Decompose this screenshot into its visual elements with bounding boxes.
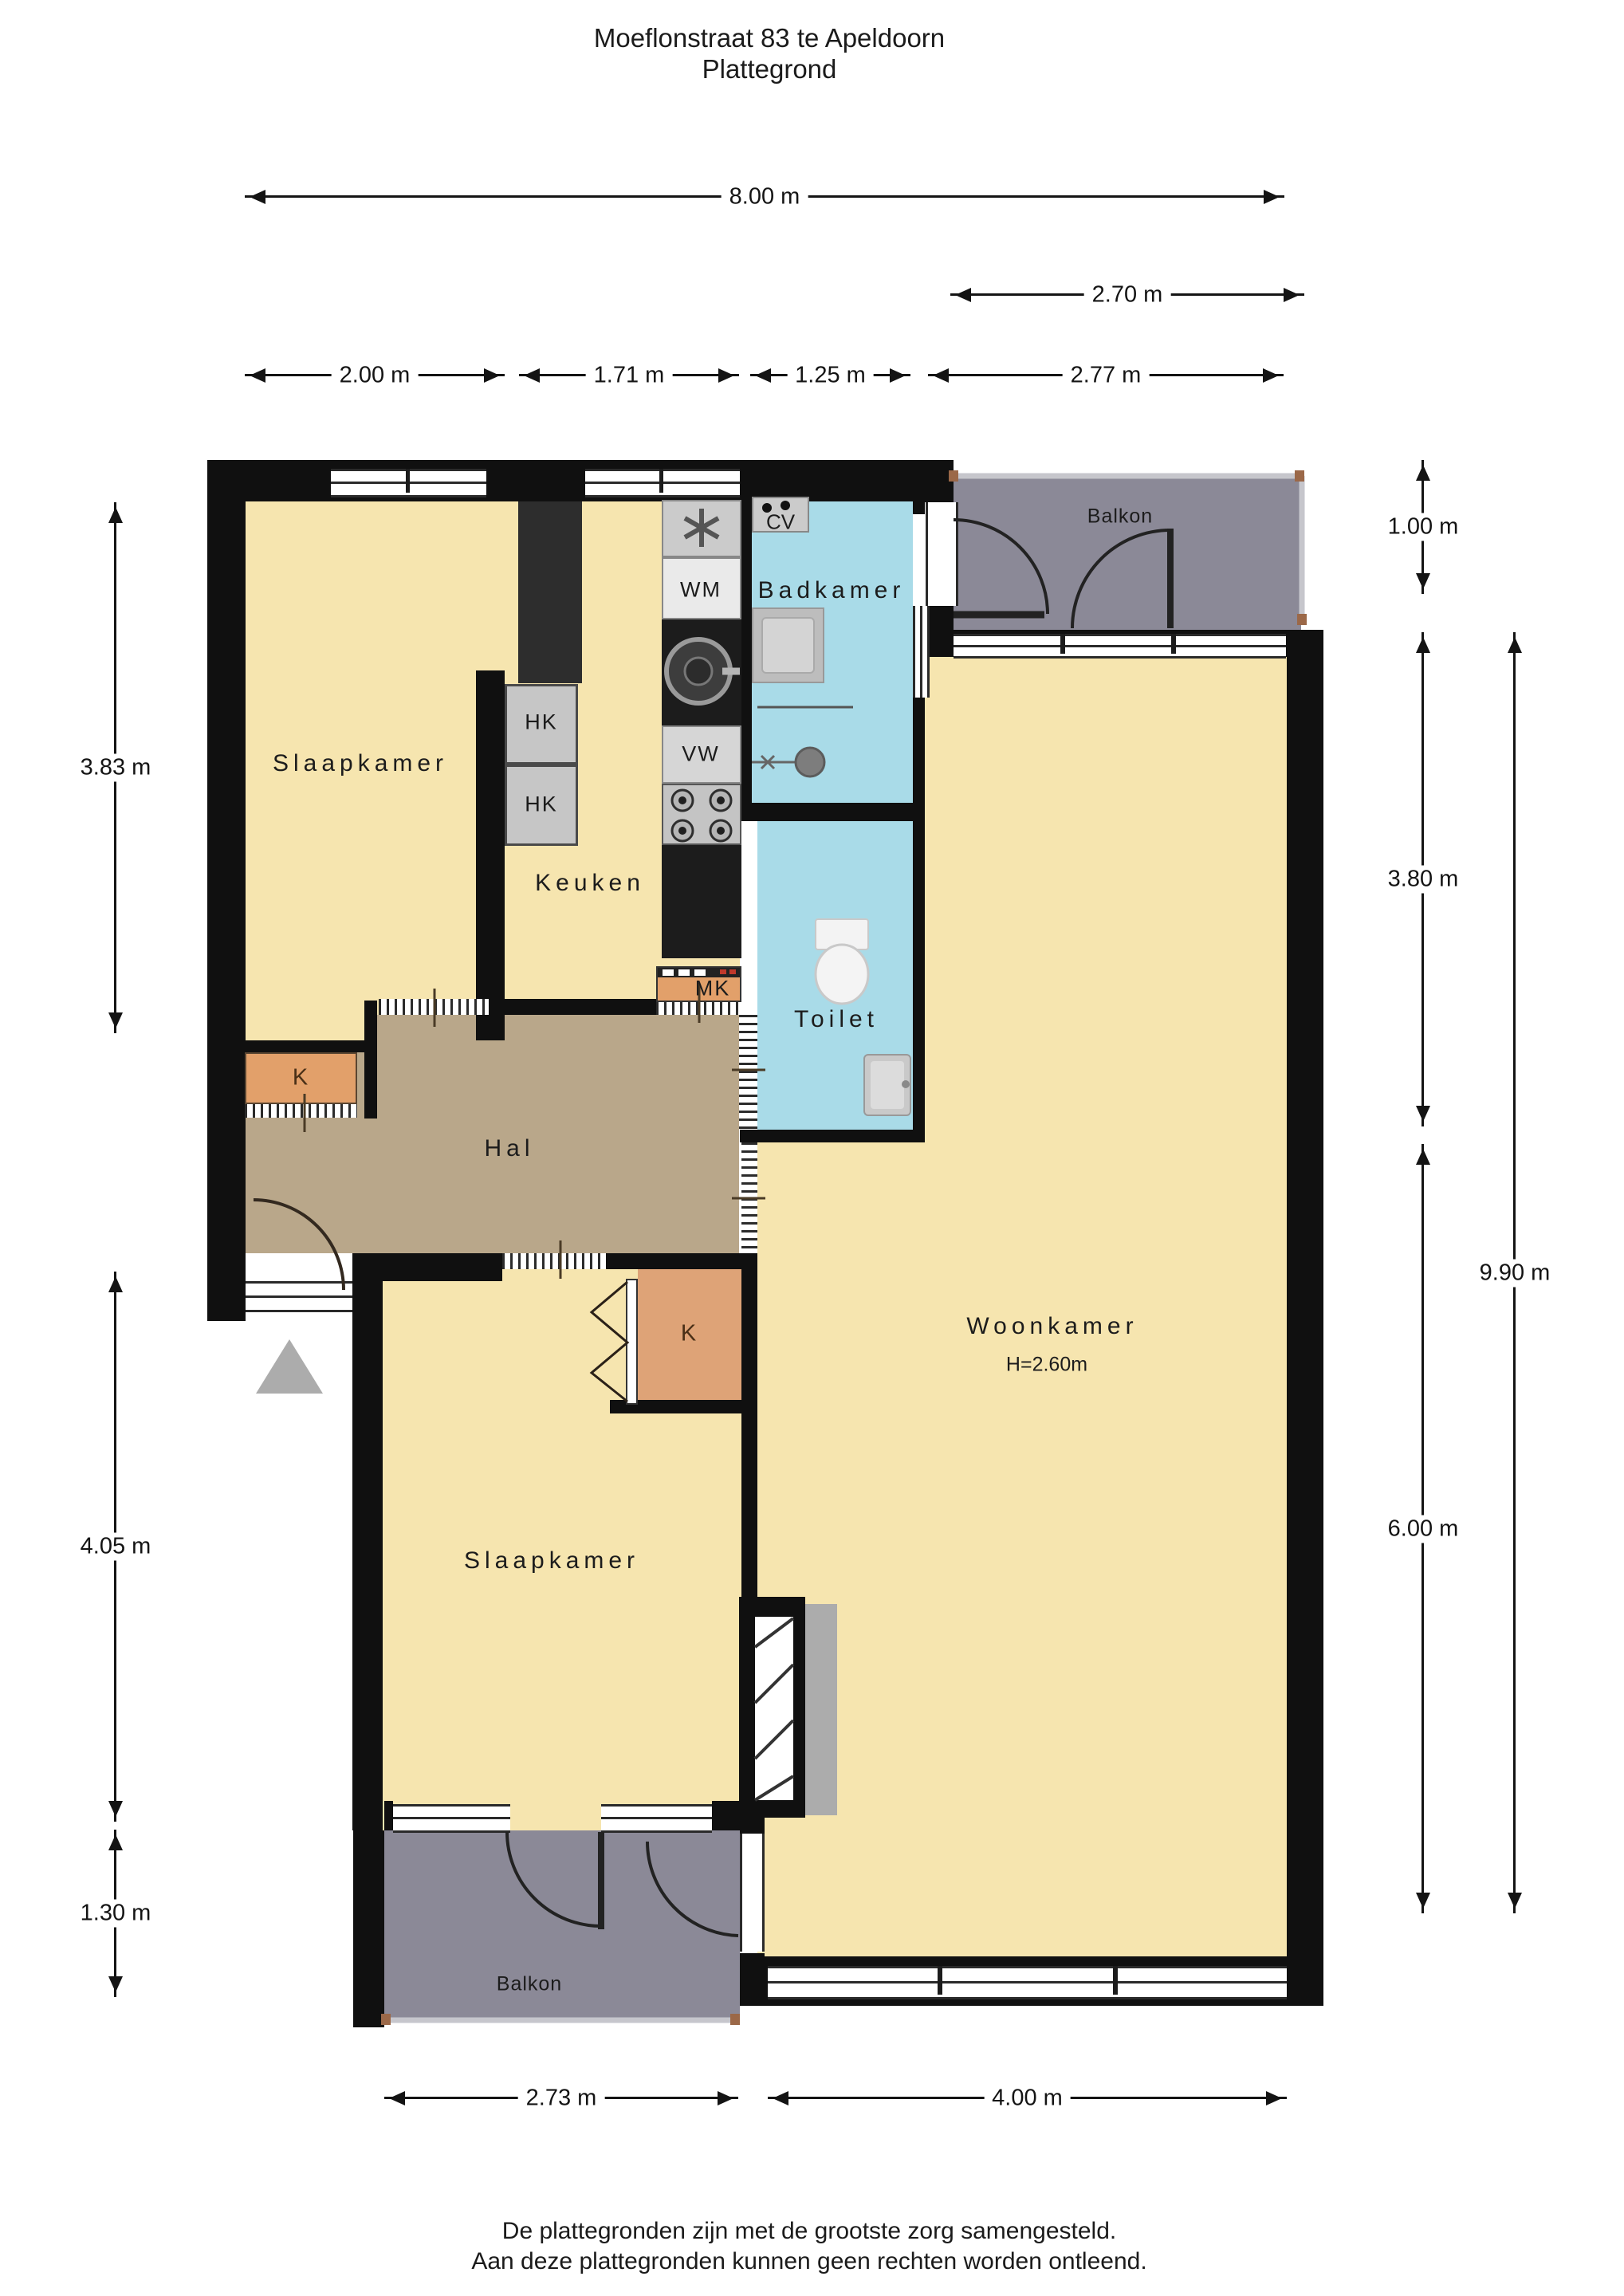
woonkamer-balkon-top-door-arc [1072, 530, 1170, 628]
label-kast-slaapkamer: K [681, 1321, 697, 1347]
label-balkon-bottom: Balkon [497, 1973, 562, 1996]
label-wasmachine: WM [680, 578, 722, 603]
dim-label: 1.25 m [787, 362, 874, 390]
dim-badkamer-width: 1.25 m [750, 374, 910, 376]
toilet-bowl [816, 945, 868, 1004]
disclaimer-line-2: Aan deze plattegronden kunnen geen recht… [471, 2247, 1146, 2277]
dim-label: 8.00 m [722, 183, 808, 211]
balkon-bottom-railing [381, 2014, 740, 2025]
label-slaapkamer-top: Slaapkamer [273, 750, 448, 777]
label-hal: Hal [484, 1135, 534, 1162]
disclaimer-line-1: De plattegronden zijn met de grootste zo… [471, 2216, 1146, 2247]
dim-label: 1.71 m [586, 362, 673, 390]
shaft-hatch [755, 1618, 793, 1800]
label-meterkast: MK [695, 977, 731, 1001]
cv-dot [781, 501, 790, 510]
floorplan-page: Moeflonstraat 83 te Apeldoorn Plattegron… [0, 0, 1624, 2296]
label-vaatwasser: VW [682, 742, 720, 767]
dim-label: 2.73 m [518, 2085, 605, 2113]
disclaimer: De plattegronden zijn met de grootste zo… [471, 2216, 1146, 2277]
dim-left-balkon: 1.30 m [114, 1830, 116, 1997]
label-hangkast-2: HK [525, 792, 558, 817]
label-slaapkamer-bottom: Slaapkamer [464, 1547, 639, 1575]
kitchen-sink-inner [685, 658, 712, 685]
dim-woonkamer-width: 2.77 m [928, 374, 1284, 376]
door-tick-marks [305, 983, 765, 1279]
dim-left-slaapkamer-top: 3.83 m [114, 502, 116, 1033]
label-woonkamer: Woonkamer [966, 1313, 1138, 1340]
dim-slaapkamer-top-width: 2.00 m [245, 374, 505, 376]
vent-fan-icon [685, 509, 718, 547]
dim-label: 3.80 m [1380, 866, 1467, 894]
dim-left-slaapkamer-bottom: 4.05 m [114, 1272, 116, 1822]
dim-label: 9.90 m [1472, 1259, 1559, 1287]
handbasin-tap [902, 1080, 910, 1088]
dim-right-total: 9.90 m [1513, 632, 1516, 1913]
label-woonkamer-height: H=2.60m [1006, 1354, 1087, 1377]
dim-keuken-width: 1.71 m [519, 374, 739, 376]
label-hangkast-1: HK [525, 710, 558, 735]
dim-label: 1.30 m [73, 1900, 159, 1928]
badkamer-washbasin [796, 748, 824, 776]
label-keuken: Keuken [535, 870, 645, 897]
dim-label: 6.00 m [1380, 1515, 1467, 1543]
label-balkon-top: Balkon [1087, 505, 1153, 529]
dim-label: 1.00 m [1380, 513, 1467, 541]
plan-vector-overlay [0, 0, 1624, 2296]
dim-right-lower: 6.00 m [1421, 1144, 1424, 1913]
woonkamer-balkon-bottom-door-arc [647, 1842, 738, 1936]
label-kast-hal: K [293, 1065, 309, 1091]
slaapkamer-balkon-door-arc [507, 1832, 601, 1926]
dim-bottom-woonkamer: 4.00 m [768, 2097, 1287, 2099]
dim-label: 2.00 m [332, 362, 419, 390]
stove-burners-icon [672, 790, 731, 841]
dim-balkon-top-width: 2.70 m [950, 293, 1304, 296]
badkamer-balkon-door-arc [954, 520, 1048, 614]
kast-bifold-doors [592, 1282, 627, 1402]
dim-top-total: 8.00 m [245, 195, 1284, 198]
entrance-marker-triangle [256, 1339, 323, 1394]
dim-label: 2.70 m [1084, 281, 1171, 309]
dim-label: 4.00 m [984, 2085, 1071, 2113]
label-cv-ketel: CV [766, 510, 795, 535]
dim-bottom-slaapkamer: 2.73 m [384, 2097, 738, 2099]
label-toilet: Toilet [794, 1006, 879, 1033]
dim-right-balkon-depth: 1.00 m [1421, 460, 1424, 594]
dim-label: 4.05 m [73, 1533, 159, 1561]
dim-label: 2.77 m [1063, 362, 1150, 390]
dim-right-upper: 3.80 m [1421, 632, 1424, 1126]
front-door-arc [254, 1200, 344, 1290]
balkon-top-railing [949, 470, 1307, 625]
label-badkamer: Badkamer [758, 577, 906, 604]
dim-label: 3.83 m [73, 754, 159, 782]
